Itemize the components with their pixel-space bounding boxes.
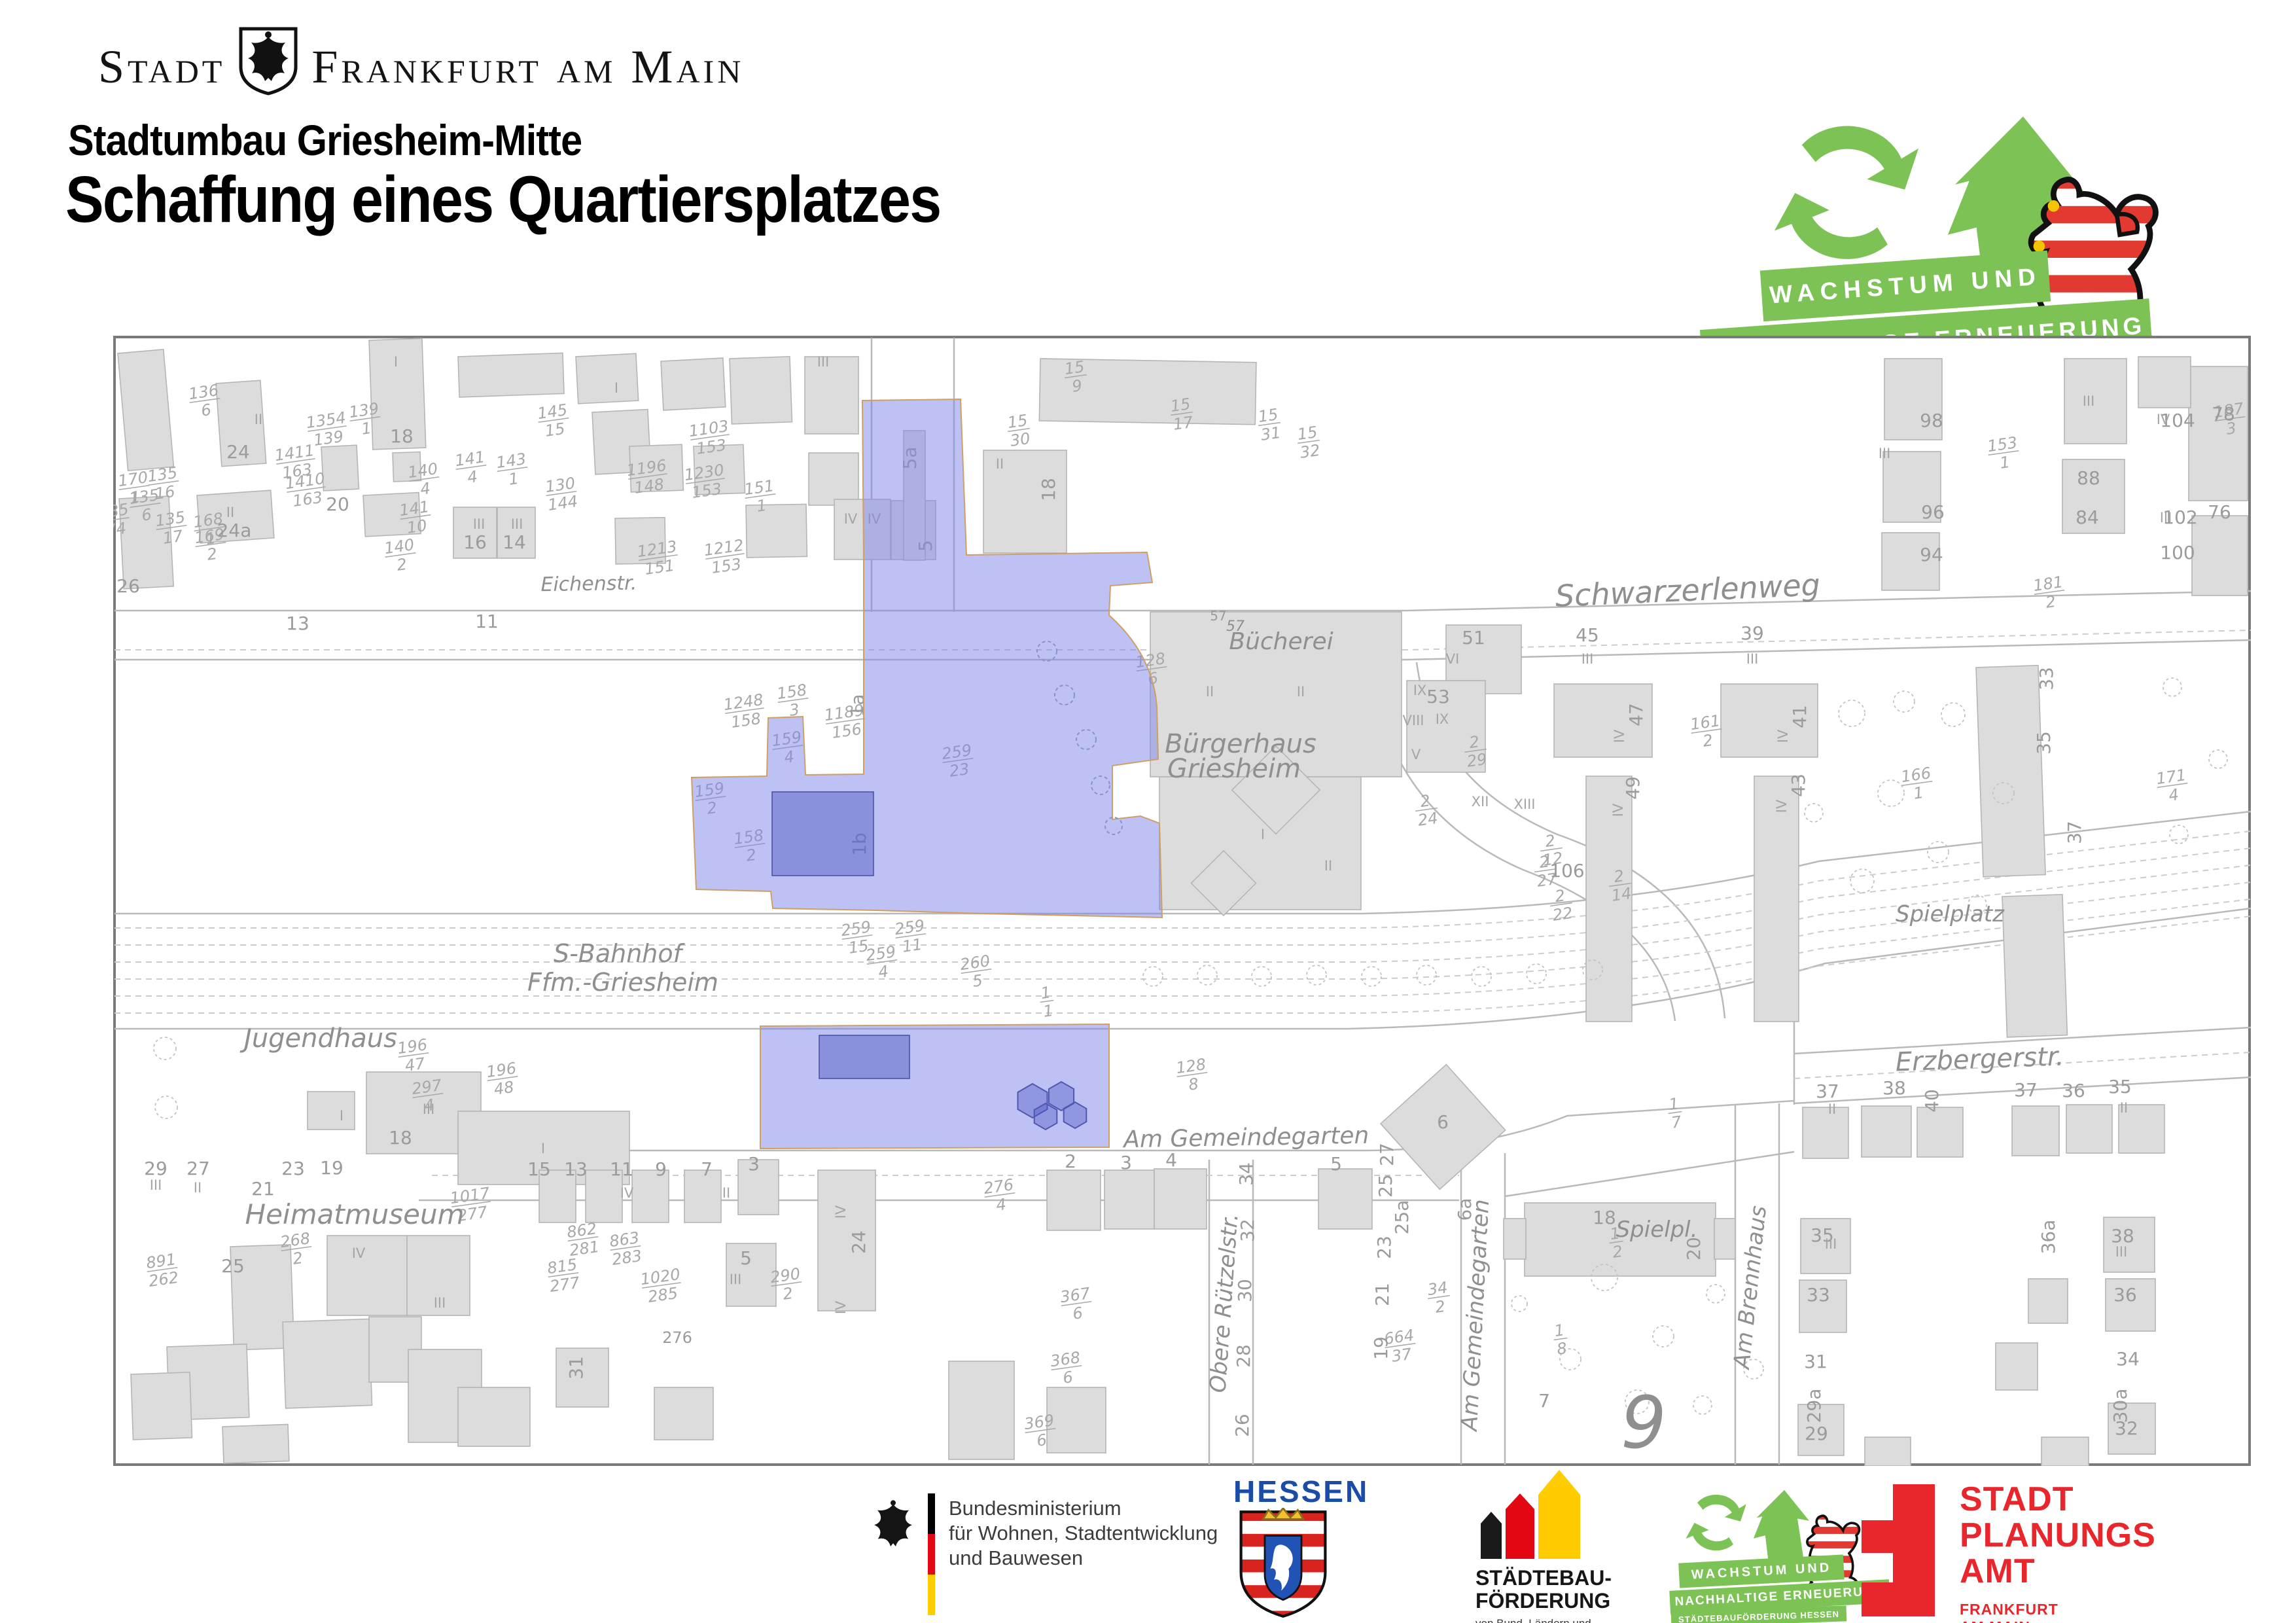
house-number-label: 49 (1622, 776, 1644, 800)
parcel-number-bottom: 29 (1466, 750, 1488, 771)
bmwsb-line1: Bundesministerium (949, 1496, 1218, 1521)
map-building (1318, 1169, 1372, 1229)
map-building (1862, 1106, 1911, 1157)
storey-mark: III (1879, 446, 1891, 461)
map-building (2192, 516, 2248, 596)
storey-mark: II (722, 1185, 730, 1201)
stamp-line3: STÄDTEBAUFÖRDERUNG HESSEN (1678, 1609, 1839, 1623)
house-number-label: 35 (2108, 1076, 2132, 1097)
storey-mark: IV (1774, 799, 1790, 813)
house-number-label: 27 (186, 1158, 210, 1179)
house-number-label: 31 (1804, 1351, 1828, 1372)
house-number-label: 276 (662, 1329, 692, 1347)
stadtplanungsamt-icon (1862, 1484, 1935, 1616)
house-number-label: 33 (2036, 667, 2057, 690)
storey-mark: I (614, 380, 618, 396)
parcel-number-bottom: 14 (1610, 884, 1633, 905)
house-number-label: 36 (2062, 1080, 2085, 1101)
house-number-label: 25a (1391, 1200, 1413, 1235)
house-number-label: 18 (1038, 478, 1059, 501)
stb-line1: STÄDTEBAU- (1475, 1567, 1612, 1590)
highlight-building (772, 792, 874, 876)
spa-line3: AMT (1960, 1554, 2156, 1590)
house-number-label: 98 (1920, 410, 1943, 431)
storey-mark: III (434, 1295, 446, 1311)
stamp-line1: WACHSTUM UND (1769, 263, 2042, 310)
parcel-number-bottom: 17 (162, 527, 185, 548)
map-building (2002, 895, 2067, 1037)
map-building (1996, 1343, 2038, 1390)
storey-mark: IV (1612, 729, 1627, 743)
house-number-label: 21 (1371, 1283, 1393, 1306)
parcel-label: 862281 (565, 1219, 601, 1260)
map-building (949, 1361, 1014, 1459)
storey-mark: IV (352, 1245, 366, 1261)
spa-line2: PLANUNGS (1960, 1518, 2156, 1554)
house-number-label: 76 (2208, 501, 2231, 523)
map-building (118, 349, 173, 471)
house-number-label: 24 (848, 1230, 870, 1254)
map-building (1154, 1169, 1207, 1229)
house-number-label: 37 (2064, 821, 2085, 844)
map-building (661, 358, 726, 410)
storey-mark: III (2160, 510, 2172, 526)
storey-mark: IV (833, 1205, 849, 1219)
map-building (321, 445, 359, 491)
storey-mark: III (150, 1177, 162, 1193)
parcel-number-bottom: 24 (1417, 809, 1439, 830)
storey-mark: VI (1446, 651, 1460, 667)
parcel-number-bottom: 15 (544, 419, 566, 440)
house-number-label: 41 (1789, 705, 1810, 728)
place-label: Spielplatz (1896, 901, 2005, 927)
house-number-label: 100 (2160, 542, 2195, 563)
storey-mark: III (817, 354, 830, 370)
house-number-label: 13 (286, 613, 309, 634)
parcel-number-bottom: 32 (1299, 441, 1321, 462)
house-number-label: 106 (1549, 860, 1584, 882)
map-building (805, 357, 858, 434)
place-label: Am Gemeindegarten (1122, 1122, 1369, 1154)
storey-mark: III (2083, 393, 2095, 409)
house-number-label: 36 (2113, 1284, 2137, 1306)
parcel-number-bottom: 17 (1172, 413, 1195, 434)
storey-mark: II (194, 1180, 202, 1196)
parcel-number-bottom: 11 (901, 935, 923, 956)
house-number-label: 88 (2077, 467, 2100, 489)
place-label: Eichenstr. (540, 572, 637, 597)
house-number-label: 78 (2212, 403, 2235, 425)
house-number-label: 13 (564, 1158, 588, 1180)
storey-mark: IV (620, 1185, 634, 1201)
house-number-label: 45 (1576, 624, 1599, 646)
map-building (2138, 357, 2191, 408)
house-number-label: 5 (740, 1247, 752, 1269)
houses-icon (1475, 1461, 1587, 1559)
map-building (327, 1236, 407, 1315)
house-number-label: 5 (1330, 1153, 1342, 1175)
house-number-label: 28 (1233, 1344, 1254, 1368)
place-label: Jugendhaus (239, 1024, 397, 1054)
place-label: Heimatmuseum (245, 1198, 465, 1230)
logo-text-frankfurt: Frankfurt am Main (311, 43, 744, 90)
parcel-number-bottom: 47 (404, 1054, 427, 1075)
house-number-label: 33 (1807, 1284, 1830, 1306)
place-label: Griesheim (1167, 754, 1301, 784)
stamp-line1: WACHSTUM UND (1691, 1560, 1832, 1582)
storey-mark: II (1206, 684, 1214, 700)
house-number-label: 18 (1593, 1207, 1616, 1228)
map-building (1504, 1219, 1526, 1259)
house-number-label: 94 (1920, 544, 1943, 565)
house-number-label: 35 (2033, 731, 2055, 755)
storey-mark: II (255, 412, 262, 427)
house-number-label: 19 (1370, 1336, 1392, 1360)
map-building (1917, 1107, 1963, 1157)
frankfurt-eagle-shield-icon (238, 26, 298, 96)
storey-mark: II (1324, 858, 1332, 874)
recycle-arrows-icon (1767, 124, 1940, 265)
house-number-label: 37 (1816, 1080, 1839, 1102)
house-number-label: 47 (1625, 703, 1647, 726)
storey-mark: III (1581, 651, 1594, 667)
map-building (2064, 359, 2127, 444)
place-label: 9 (1621, 1381, 1667, 1465)
place-label: Spielpl. (1616, 1217, 1698, 1243)
storey-mark: III (730, 1272, 742, 1287)
map-building (2012, 1106, 2059, 1156)
storey-mark: IV (844, 511, 858, 527)
house-number-label: 3 (748, 1153, 760, 1175)
map-building (576, 353, 639, 404)
parcel-number-bottom: 48 (493, 1078, 515, 1099)
flag-bar-black (928, 1493, 935, 1534)
stb-sub1: von Bund, Ländern und (1475, 1616, 1591, 1623)
storey-mark: III (473, 516, 486, 532)
house-number-label: 84 (2075, 507, 2099, 528)
house-number-label: 96 (1921, 501, 1945, 523)
map-building (2041, 1437, 2089, 1466)
map-building (1976, 666, 2045, 877)
house-number-label: 26 (1231, 1414, 1253, 1437)
house-number-label: 40 (1921, 1089, 1943, 1113)
house-number-label: 24a (217, 520, 252, 541)
house-number-label: 32 (2115, 1418, 2138, 1439)
storey-mark: IV (1610, 803, 1626, 817)
house-number-label: 18 (389, 1127, 412, 1149)
storey-mark: III (2115, 1244, 2128, 1260)
bmwsb-line3: und Bauwesen (949, 1546, 1218, 1571)
storey-mark: VIII (1403, 713, 1424, 728)
highlight-building (819, 1035, 910, 1079)
house-number-label: 20 (326, 493, 349, 515)
flag-bar-red (928, 1534, 935, 1575)
storey-mark: XII (1472, 794, 1489, 810)
storey-mark: II (2120, 1100, 2128, 1116)
map-building (1803, 1107, 1848, 1158)
house-number-label: 57 (1210, 608, 1226, 624)
storey-mark: III (423, 1101, 435, 1117)
map-building (1714, 1219, 1735, 1259)
parcel-label: 891262 (145, 1250, 180, 1291)
map-building (746, 504, 807, 558)
hessen-logo: HESSEN (1233, 1474, 1333, 1509)
map-building (222, 1425, 289, 1463)
storey-mark: I (394, 354, 398, 370)
hexagon-tree-icon (1034, 1103, 1057, 1130)
storey-mark: IX (1436, 711, 1449, 727)
storey-mark: V (1411, 747, 1421, 762)
bmwsb-line2: für Wohnen, Stadtentwicklung (949, 1521, 1218, 1546)
house-number-label: 24 (226, 441, 250, 463)
map-building (2189, 366, 2248, 501)
hessen-wordmark: HESSEN (1233, 1474, 1333, 1509)
house-number-label: 26 (116, 575, 140, 597)
map-building (1104, 1170, 1154, 1229)
storey-mark: IV (833, 1300, 849, 1314)
storey-mark: IV (1775, 729, 1791, 743)
spa-line1: STADT (1960, 1482, 2156, 1518)
house-number-label: 37 (2014, 1079, 2038, 1101)
house-number-label: 2 (1065, 1150, 1076, 1172)
storey-mark: IX (1413, 683, 1427, 698)
place-label: Ffm.-Griesheim (527, 968, 718, 997)
map-building (283, 1319, 372, 1408)
house-number-label: 53 (1426, 686, 1450, 707)
house-number-label: 27 (1376, 1143, 1398, 1166)
house-number-label: 23 (1373, 1236, 1395, 1259)
house-number-label: 29 (144, 1158, 168, 1179)
house-number-label: 7 (701, 1158, 713, 1180)
parcel-number-bottom: 30 (1009, 429, 1031, 450)
house-number-label: 31 (565, 1356, 587, 1380)
parcel-number-bottom: 37 (1390, 1345, 1413, 1366)
house-number-label: 6 (1437, 1111, 1449, 1133)
house-number-label: 14 (503, 531, 526, 553)
map-building (654, 1387, 713, 1440)
house-number-label: 29 (1805, 1423, 1828, 1444)
map-building (1047, 1170, 1101, 1230)
storey-mark: XIII (1514, 796, 1536, 812)
spa-sub: FRANKFURT AM MAIN (1960, 1601, 2058, 1623)
map-building (1047, 1387, 1106, 1453)
storey-mark: III (511, 516, 523, 532)
house-number-label: 43 (1788, 774, 1809, 797)
hessen-coat-of-arms-icon (1237, 1508, 1329, 1620)
house-number-label: 34 (1235, 1162, 1257, 1186)
map-building (458, 353, 564, 397)
house-number-label: 25 (1375, 1174, 1396, 1198)
map-building (308, 1092, 355, 1130)
house-number-label: 34 (2116, 1348, 2140, 1370)
storey-mark: II (226, 505, 234, 520)
storey-mark: I (340, 1108, 344, 1124)
hexagon-tree-icon (1064, 1102, 1087, 1128)
house-number-label: 11 (475, 611, 499, 632)
stamp-line2: NACHHALTIGE ERNEUERUNG (1674, 1584, 1885, 1610)
storey-mark: III (1746, 651, 1759, 667)
place-label: Bücherei (1229, 628, 1333, 655)
house-number-label: 7 (1538, 1390, 1550, 1412)
parcel-number-bottom: 31 (1260, 423, 1282, 444)
parcel-label: 863283 (608, 1228, 643, 1269)
parcel-number-bottom: 10 (406, 516, 428, 537)
storey-mark: II (1828, 1101, 1836, 1117)
map-building (730, 357, 792, 424)
storey-mark: I (1261, 827, 1265, 842)
house-number-label: 18 (390, 425, 414, 447)
house-number-label: 15 (527, 1158, 551, 1180)
house-number-label: 19 (320, 1157, 344, 1179)
parcel-label: 815277 (546, 1255, 581, 1296)
logo-text-stadt: Stadt (98, 43, 225, 90)
storey-mark: III (1825, 1236, 1837, 1252)
house-number-label: 51 (1462, 627, 1485, 649)
house-number-label: 21 (251, 1178, 275, 1200)
storey-mark: II (1297, 684, 1305, 700)
house-number-label: 23 (281, 1158, 305, 1179)
house-number-label: 36a (2038, 1220, 2059, 1255)
house-number-label: 25 (221, 1255, 245, 1277)
bundesadler-icon (867, 1499, 919, 1554)
map-building (131, 1372, 192, 1440)
flag-bar-gold (928, 1575, 935, 1615)
house-number-label: 11 (610, 1158, 633, 1180)
map-building (809, 453, 858, 505)
parcel-number-bottom: 22 (1551, 904, 1574, 925)
house-number-label: 29a (1803, 1389, 1825, 1423)
project-subtitle: Stadtumbau Griesheim-Mitte (68, 115, 582, 165)
map-building (2028, 1279, 2068, 1323)
house-number-label: 39 (1740, 622, 1764, 644)
house-number-label: 3 (1120, 1152, 1132, 1173)
stadt-frankfurt-logo: Stadt Frankfurt am Main (98, 26, 744, 90)
map-building (1865, 1437, 1911, 1466)
storey-mark: IV (2157, 412, 2170, 427)
house-number-label: 38 (1882, 1077, 1906, 1099)
storey-mark: II (996, 456, 1004, 472)
site-plan-map: 1384175138517413661354139139113516135613… (113, 336, 2251, 1466)
place-label: S-Bahnhof (554, 939, 686, 968)
place-label: Erzbergerstr. (1895, 1042, 2064, 1078)
storey-mark: I (541, 1141, 545, 1156)
map-building (458, 1387, 530, 1446)
stb-line2: FÖRDERUNG (1475, 1590, 1612, 1613)
map-building (2066, 1105, 2112, 1153)
poster: Stadt Frankfurt am Main Stadtumbau Gries… (0, 0, 2296, 1623)
house-number-label: 16 (463, 531, 487, 553)
parcel-label: 130144 (544, 474, 579, 514)
house-number-label: 9 (655, 1158, 667, 1180)
page-title: Schaffung eines Quartiersplatzes (65, 162, 940, 238)
